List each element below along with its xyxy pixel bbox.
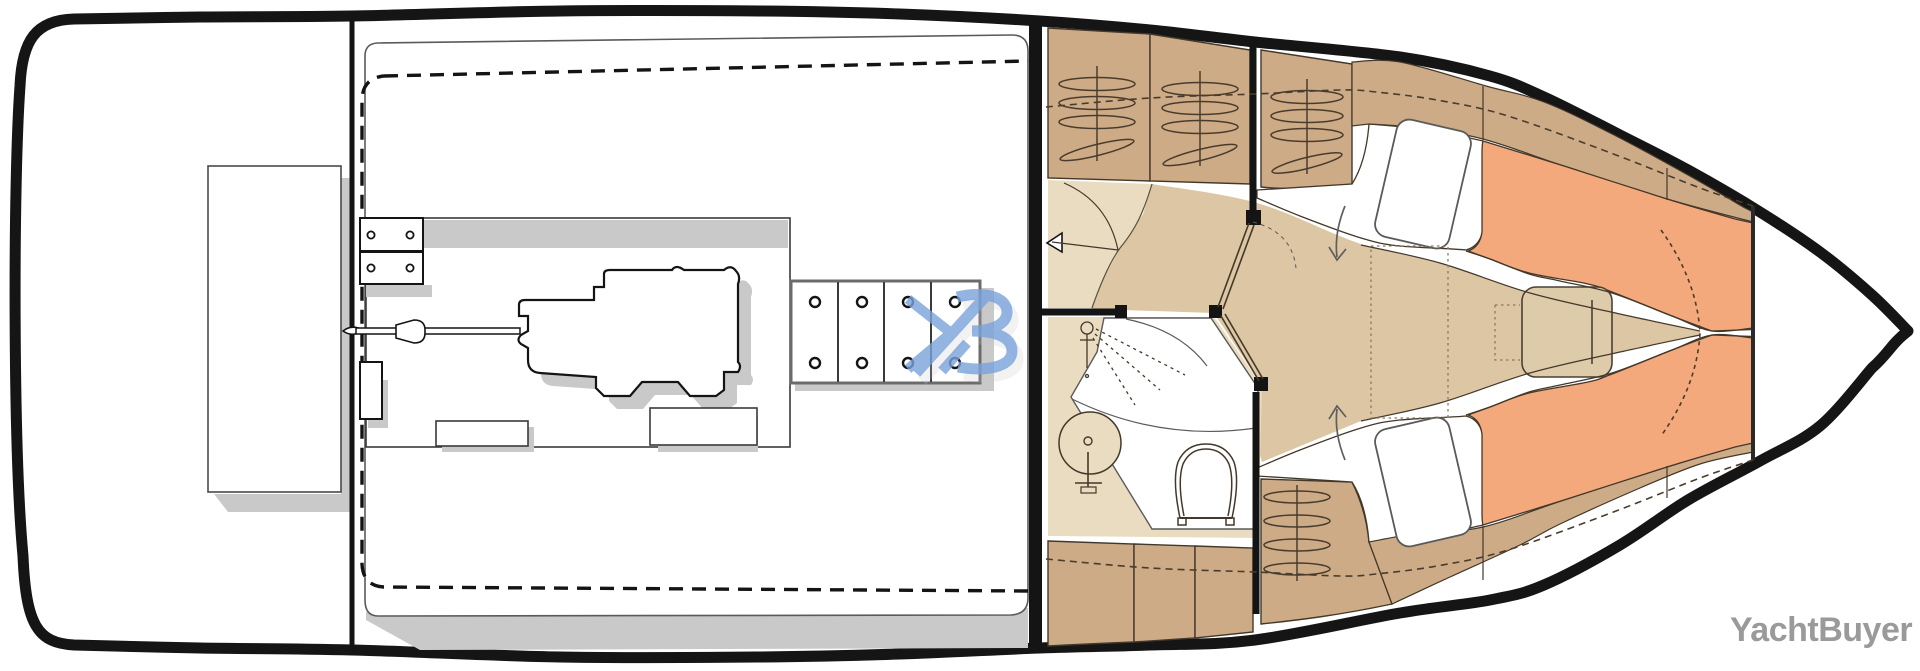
svg-text:YachtBuyer: YachtBuyer — [1730, 611, 1912, 649]
